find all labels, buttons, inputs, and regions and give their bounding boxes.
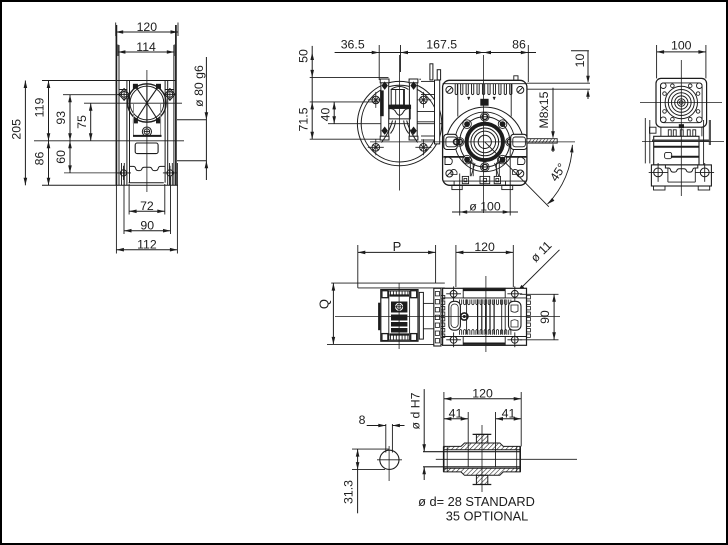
svg-text:100: 100: [671, 39, 692, 53]
svg-text:90: 90: [140, 219, 154, 233]
svg-text:35 OPTIONAL: 35 OPTIONAL: [446, 508, 529, 523]
svg-text:31.3: 31.3: [342, 480, 356, 504]
svg-text:86: 86: [512, 37, 526, 51]
svg-text:114: 114: [136, 40, 156, 54]
svg-text:60: 60: [54, 150, 68, 164]
svg-text:72: 72: [140, 199, 154, 213]
svg-text:ø d H7: ø d H7: [408, 392, 422, 429]
svg-text:112: 112: [137, 238, 157, 252]
svg-text:120: 120: [474, 240, 495, 254]
svg-text:120: 120: [137, 20, 158, 34]
svg-text:ø d= 28 STANDARD: ø d= 28 STANDARD: [418, 494, 535, 509]
svg-text:Q: Q: [317, 299, 332, 309]
svg-text:41: 41: [502, 407, 516, 421]
svg-text:167.5: 167.5: [426, 37, 457, 51]
svg-text:41: 41: [449, 407, 463, 421]
svg-text:90: 90: [538, 310, 552, 324]
svg-text:50: 50: [296, 49, 310, 63]
svg-text:10: 10: [573, 54, 587, 68]
svg-text:M8x15: M8x15: [537, 91, 551, 128]
svg-text:40: 40: [318, 108, 332, 122]
svg-text:ø 80 g6: ø 80 g6: [192, 65, 206, 107]
svg-text:86: 86: [33, 152, 47, 166]
svg-text:93: 93: [54, 111, 68, 125]
svg-text:119: 119: [33, 98, 47, 118]
svg-text:8: 8: [359, 413, 366, 427]
svg-text:P: P: [393, 239, 402, 254]
svg-text:75: 75: [75, 115, 89, 129]
svg-text:205: 205: [10, 119, 24, 140]
svg-text:36.5: 36.5: [341, 37, 365, 51]
svg-text:71.5: 71.5: [296, 107, 310, 131]
svg-text:ø 100: ø 100: [469, 199, 501, 213]
svg-text:120: 120: [472, 387, 493, 401]
